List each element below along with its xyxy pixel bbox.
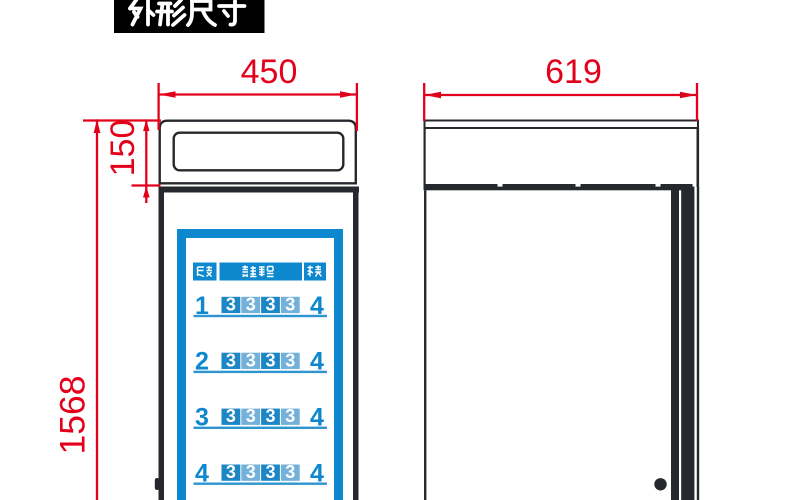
svg-text:3: 3	[246, 406, 256, 426]
svg-text:3: 3	[265, 350, 275, 370]
svg-text:3: 3	[246, 350, 256, 370]
svg-text:3: 3	[285, 406, 295, 426]
svg-text:150: 150	[104, 120, 142, 177]
svg-text:3: 3	[285, 462, 295, 482]
svg-text:3: 3	[265, 406, 275, 426]
svg-text:3: 3	[226, 350, 236, 370]
svg-text:450: 450	[241, 53, 298, 91]
svg-text:3: 3	[226, 462, 236, 482]
svg-text:3: 3	[285, 294, 295, 314]
svg-text:3: 3	[246, 462, 256, 482]
svg-text:3: 3	[265, 462, 275, 482]
svg-text:1568: 1568	[53, 376, 93, 455]
svg-text:3: 3	[226, 294, 236, 314]
svg-text:3: 3	[246, 294, 256, 314]
svg-text:3: 3	[226, 406, 236, 426]
svg-text:3: 3	[265, 294, 275, 314]
svg-text:3: 3	[285, 350, 295, 370]
svg-text:619: 619	[545, 53, 602, 91]
